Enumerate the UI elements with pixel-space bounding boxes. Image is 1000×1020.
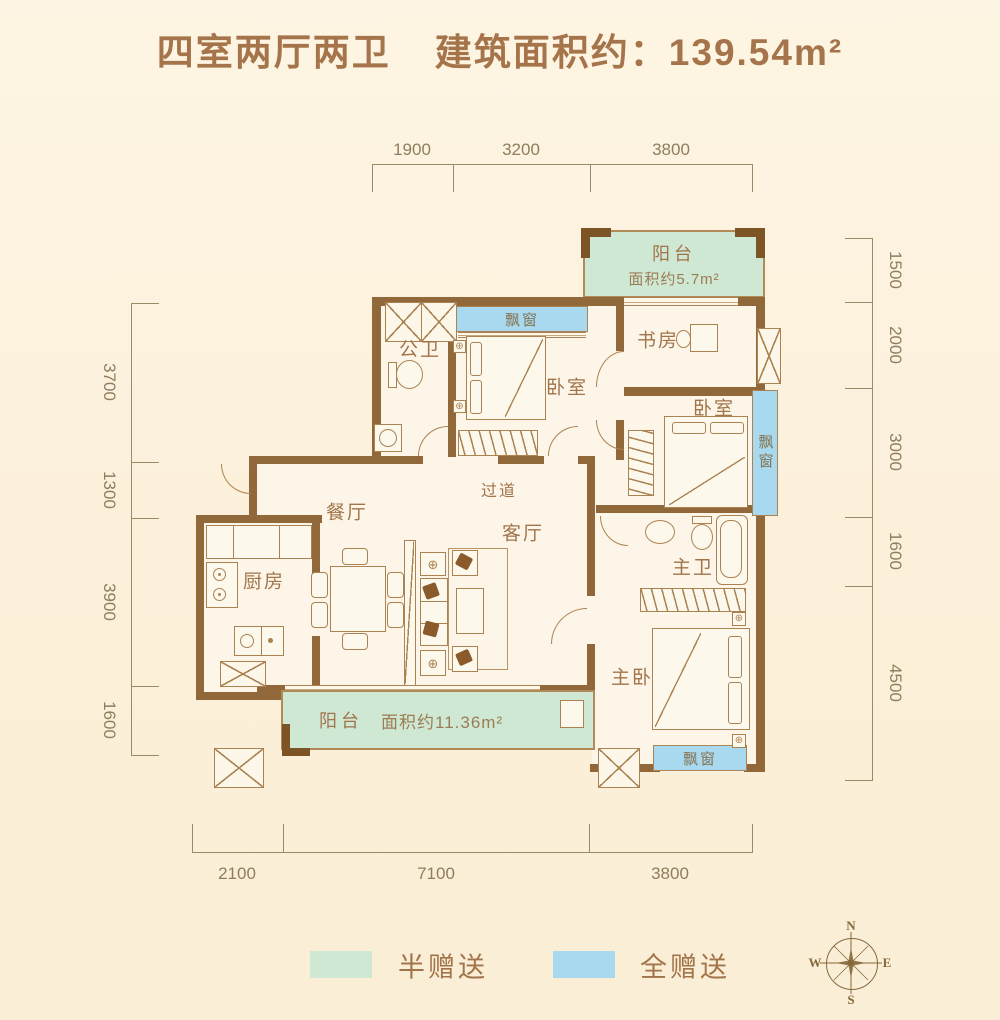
room-label-dining: 餐厅 xyxy=(326,498,368,525)
dimension-label: 1500 xyxy=(885,251,905,289)
stove-burner xyxy=(213,588,226,601)
dimension-label: 7100 xyxy=(417,864,455,884)
dimension-label: 3900 xyxy=(99,583,119,621)
dimension-label: 3000 xyxy=(885,433,905,471)
dimension-label: 1300 xyxy=(99,471,119,509)
wall xyxy=(196,515,204,700)
dimension-label: 4500 xyxy=(885,664,905,702)
wardrobe xyxy=(640,588,746,612)
legend-label-half-free: 半赠送 xyxy=(398,946,488,985)
dimension-tick xyxy=(752,824,753,852)
compass-north-label: N xyxy=(846,918,855,934)
bathtub-icon xyxy=(716,515,748,585)
bay-window-bottom: 飘窗 xyxy=(653,745,747,771)
balcony-bottom-area: 面积约11.36m² xyxy=(381,708,503,733)
bay-window-top-label: 飘窗 xyxy=(505,309,539,330)
compass-star-icon xyxy=(818,930,884,996)
compass-west-label: W xyxy=(809,955,822,971)
bed-pillow xyxy=(470,342,482,376)
dimension-tick xyxy=(845,388,873,389)
coffee-table xyxy=(456,588,484,634)
legend-swatch-full-free xyxy=(553,951,615,978)
kitchen-window-box xyxy=(220,661,266,687)
toilet-icon xyxy=(691,524,713,550)
balcony-pillar xyxy=(581,228,590,258)
dimension-tick xyxy=(192,824,193,852)
room-label-study: 书房 xyxy=(637,326,679,353)
dimension-label: 2100 xyxy=(218,864,256,884)
room-label-bedroom-right: 卧室 xyxy=(693,394,735,421)
kitchen-counter xyxy=(206,525,312,559)
bed-pillow xyxy=(672,422,706,434)
wardrobe xyxy=(628,430,654,496)
built-area-text: 建筑面积约：139.54m² xyxy=(435,22,843,76)
dining-chair xyxy=(311,602,328,628)
bay-window-right: 飘窗 xyxy=(752,390,778,516)
dimension-tick xyxy=(453,164,454,192)
floor-plan-page: 四室两厅两卫 建筑面积约：139.54m² 阳台 面积约5.7m² xyxy=(0,0,1000,1020)
wall xyxy=(196,515,322,523)
window-slider xyxy=(624,297,738,306)
dimension-tick xyxy=(589,824,590,852)
dimension-line xyxy=(872,238,873,780)
dimension-label: 1900 xyxy=(393,140,431,160)
dining-chair xyxy=(387,572,404,598)
room-label-kitchen: 厨房 xyxy=(243,567,285,594)
bay-window-right-label: 飘窗 xyxy=(755,434,776,472)
wardrobe xyxy=(458,430,538,456)
dimension-tick xyxy=(131,755,159,756)
bay-window-bottom-label: 飘窗 xyxy=(683,748,717,769)
nightstand-icon xyxy=(732,734,746,748)
dining-table xyxy=(330,566,386,632)
balcony-pillar xyxy=(282,748,310,756)
bed-pillow xyxy=(728,636,742,678)
compass-east-label: E xyxy=(883,955,892,971)
dining-chair xyxy=(387,602,404,628)
nightstand-icon xyxy=(732,612,746,626)
desk xyxy=(690,324,718,352)
toilet-icon xyxy=(396,360,423,389)
bed-pillow xyxy=(710,422,744,434)
layout-type-text: 四室两厅两卫 xyxy=(157,22,391,76)
dimension-tick xyxy=(372,164,373,192)
wall xyxy=(587,456,595,596)
bed-pillow xyxy=(470,380,482,414)
entry-door-arc xyxy=(221,464,251,494)
dimension-line xyxy=(192,852,753,853)
dimension-line xyxy=(372,164,753,165)
dimension-tick xyxy=(845,780,873,781)
dimension-tick xyxy=(845,302,873,303)
dimension-tick xyxy=(131,518,159,519)
wall xyxy=(756,514,765,772)
balcony-bottom: 阳台 面积约11.36m² xyxy=(281,690,595,750)
tv-stand xyxy=(404,540,416,686)
balcony-top-label: 阳台 xyxy=(652,240,696,266)
wall xyxy=(498,456,544,464)
dining-chair xyxy=(342,548,368,565)
dimension-tick xyxy=(845,586,873,587)
compass: N E S W xyxy=(806,916,898,1010)
dimension-label: 1600 xyxy=(885,532,905,570)
dimension-label: 1600 xyxy=(99,701,119,739)
dimension-label: 3800 xyxy=(652,140,690,160)
bed-pillow xyxy=(728,682,742,724)
dimension-tick xyxy=(845,238,873,239)
kitchen-sink-icon xyxy=(234,626,284,656)
dimension-line xyxy=(131,303,132,755)
balcony-column xyxy=(560,700,584,728)
dining-chair xyxy=(342,633,368,650)
dimension-tick xyxy=(752,164,753,192)
sink-icon xyxy=(645,520,675,544)
room-label-public-bath: 公卫 xyxy=(399,335,441,362)
wall xyxy=(381,456,423,464)
flower-bed-box xyxy=(598,748,640,788)
room-label-master-bath: 主卫 xyxy=(672,553,714,580)
dimension-tick xyxy=(590,164,591,192)
wall xyxy=(744,764,765,772)
wall xyxy=(312,523,320,579)
compass-south-label: S xyxy=(847,992,854,1008)
balcony-pillar xyxy=(756,228,765,258)
nightstand-icon xyxy=(453,340,466,353)
wall xyxy=(578,456,590,464)
room-label-bedroom-top: 卧室 xyxy=(546,373,588,400)
room-label-corridor: 过道 xyxy=(481,477,517,501)
balcony-top-area: 面积约5.7m² xyxy=(628,268,719,289)
dimension-tick xyxy=(131,462,159,463)
dimension-tick xyxy=(845,517,873,518)
dimension-label: 3700 xyxy=(99,363,119,401)
page-title: 四室两厅两卫 建筑面积约：139.54m² xyxy=(0,22,1000,76)
wall xyxy=(251,456,381,464)
room-label-living: 客厅 xyxy=(502,519,544,546)
nightstand-icon xyxy=(453,400,466,413)
toilet-tank xyxy=(692,516,712,524)
wall xyxy=(616,305,624,351)
stove-burner xyxy=(213,568,226,581)
washing-machine-drum xyxy=(379,429,397,447)
flower-bed-box xyxy=(214,748,264,788)
dimension-tick xyxy=(131,303,159,304)
dining-chair xyxy=(311,572,328,598)
dimension-label: 3800 xyxy=(651,864,689,884)
legend-label-full-free: 全赠送 xyxy=(640,946,730,985)
legend-swatch-half-free xyxy=(310,951,372,978)
end-table-icon xyxy=(420,552,446,576)
dimension-tick xyxy=(131,686,159,687)
dimension-label: 2000 xyxy=(885,326,905,364)
room-label-master-bedroom: 主卧 xyxy=(611,663,653,690)
dimension-label: 3200 xyxy=(502,140,540,160)
bay-window-top: 飘窗 xyxy=(456,306,588,332)
end-table-icon xyxy=(420,650,446,676)
balcony-bottom-label: 阳台 xyxy=(319,707,363,733)
dimension-tick xyxy=(283,824,284,852)
ac-unit-box xyxy=(757,328,781,384)
wall xyxy=(312,636,320,692)
balcony-top: 阳台 面积约5.7m² xyxy=(583,230,765,298)
